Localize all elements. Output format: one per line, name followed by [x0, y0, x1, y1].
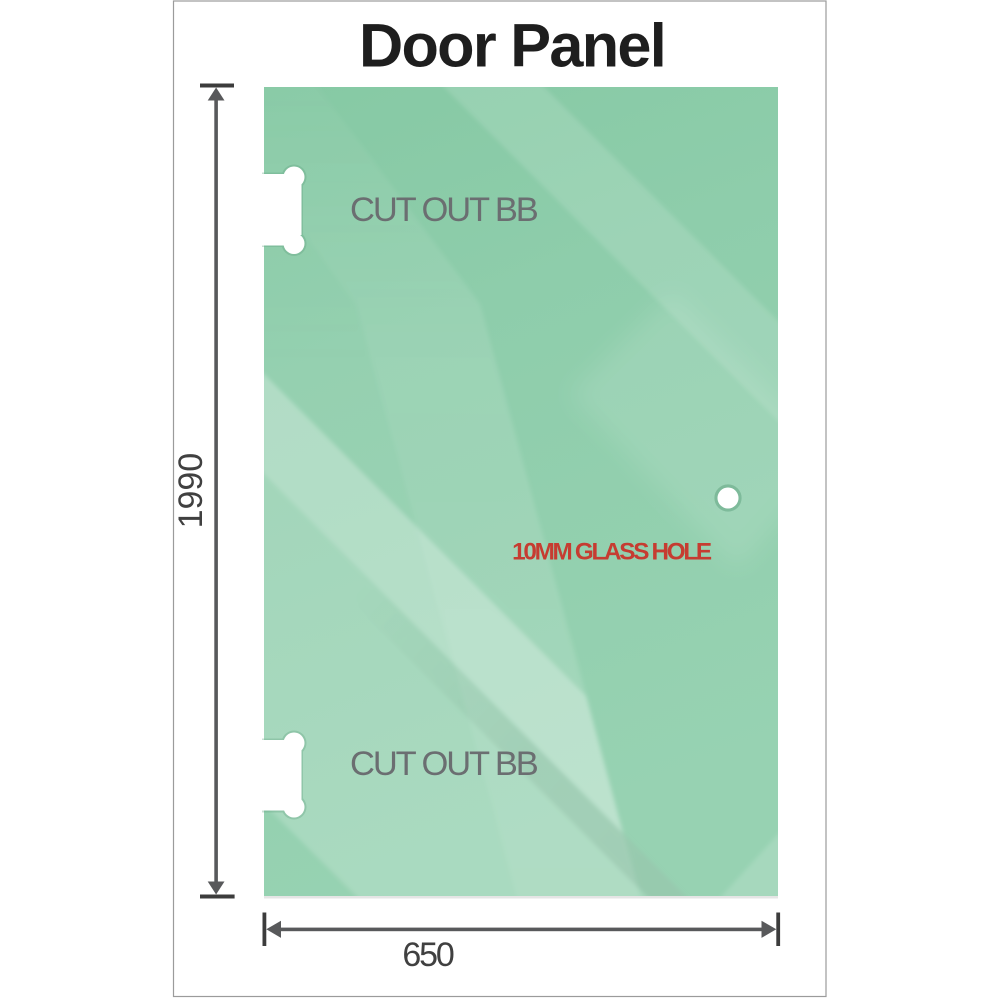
svg-text:CUT OUT BB: CUT OUT BB: [350, 745, 538, 783]
svg-text:CUT OUT BB: CUT OUT BB: [350, 191, 538, 229]
svg-text:Door Panel: Door Panel: [359, 12, 665, 80]
svg-text:10MM GLASS HOLE: 10MM GLASS HOLE: [512, 539, 712, 566]
svg-text:1990: 1990: [172, 453, 210, 529]
svg-text:650: 650: [402, 936, 453, 974]
